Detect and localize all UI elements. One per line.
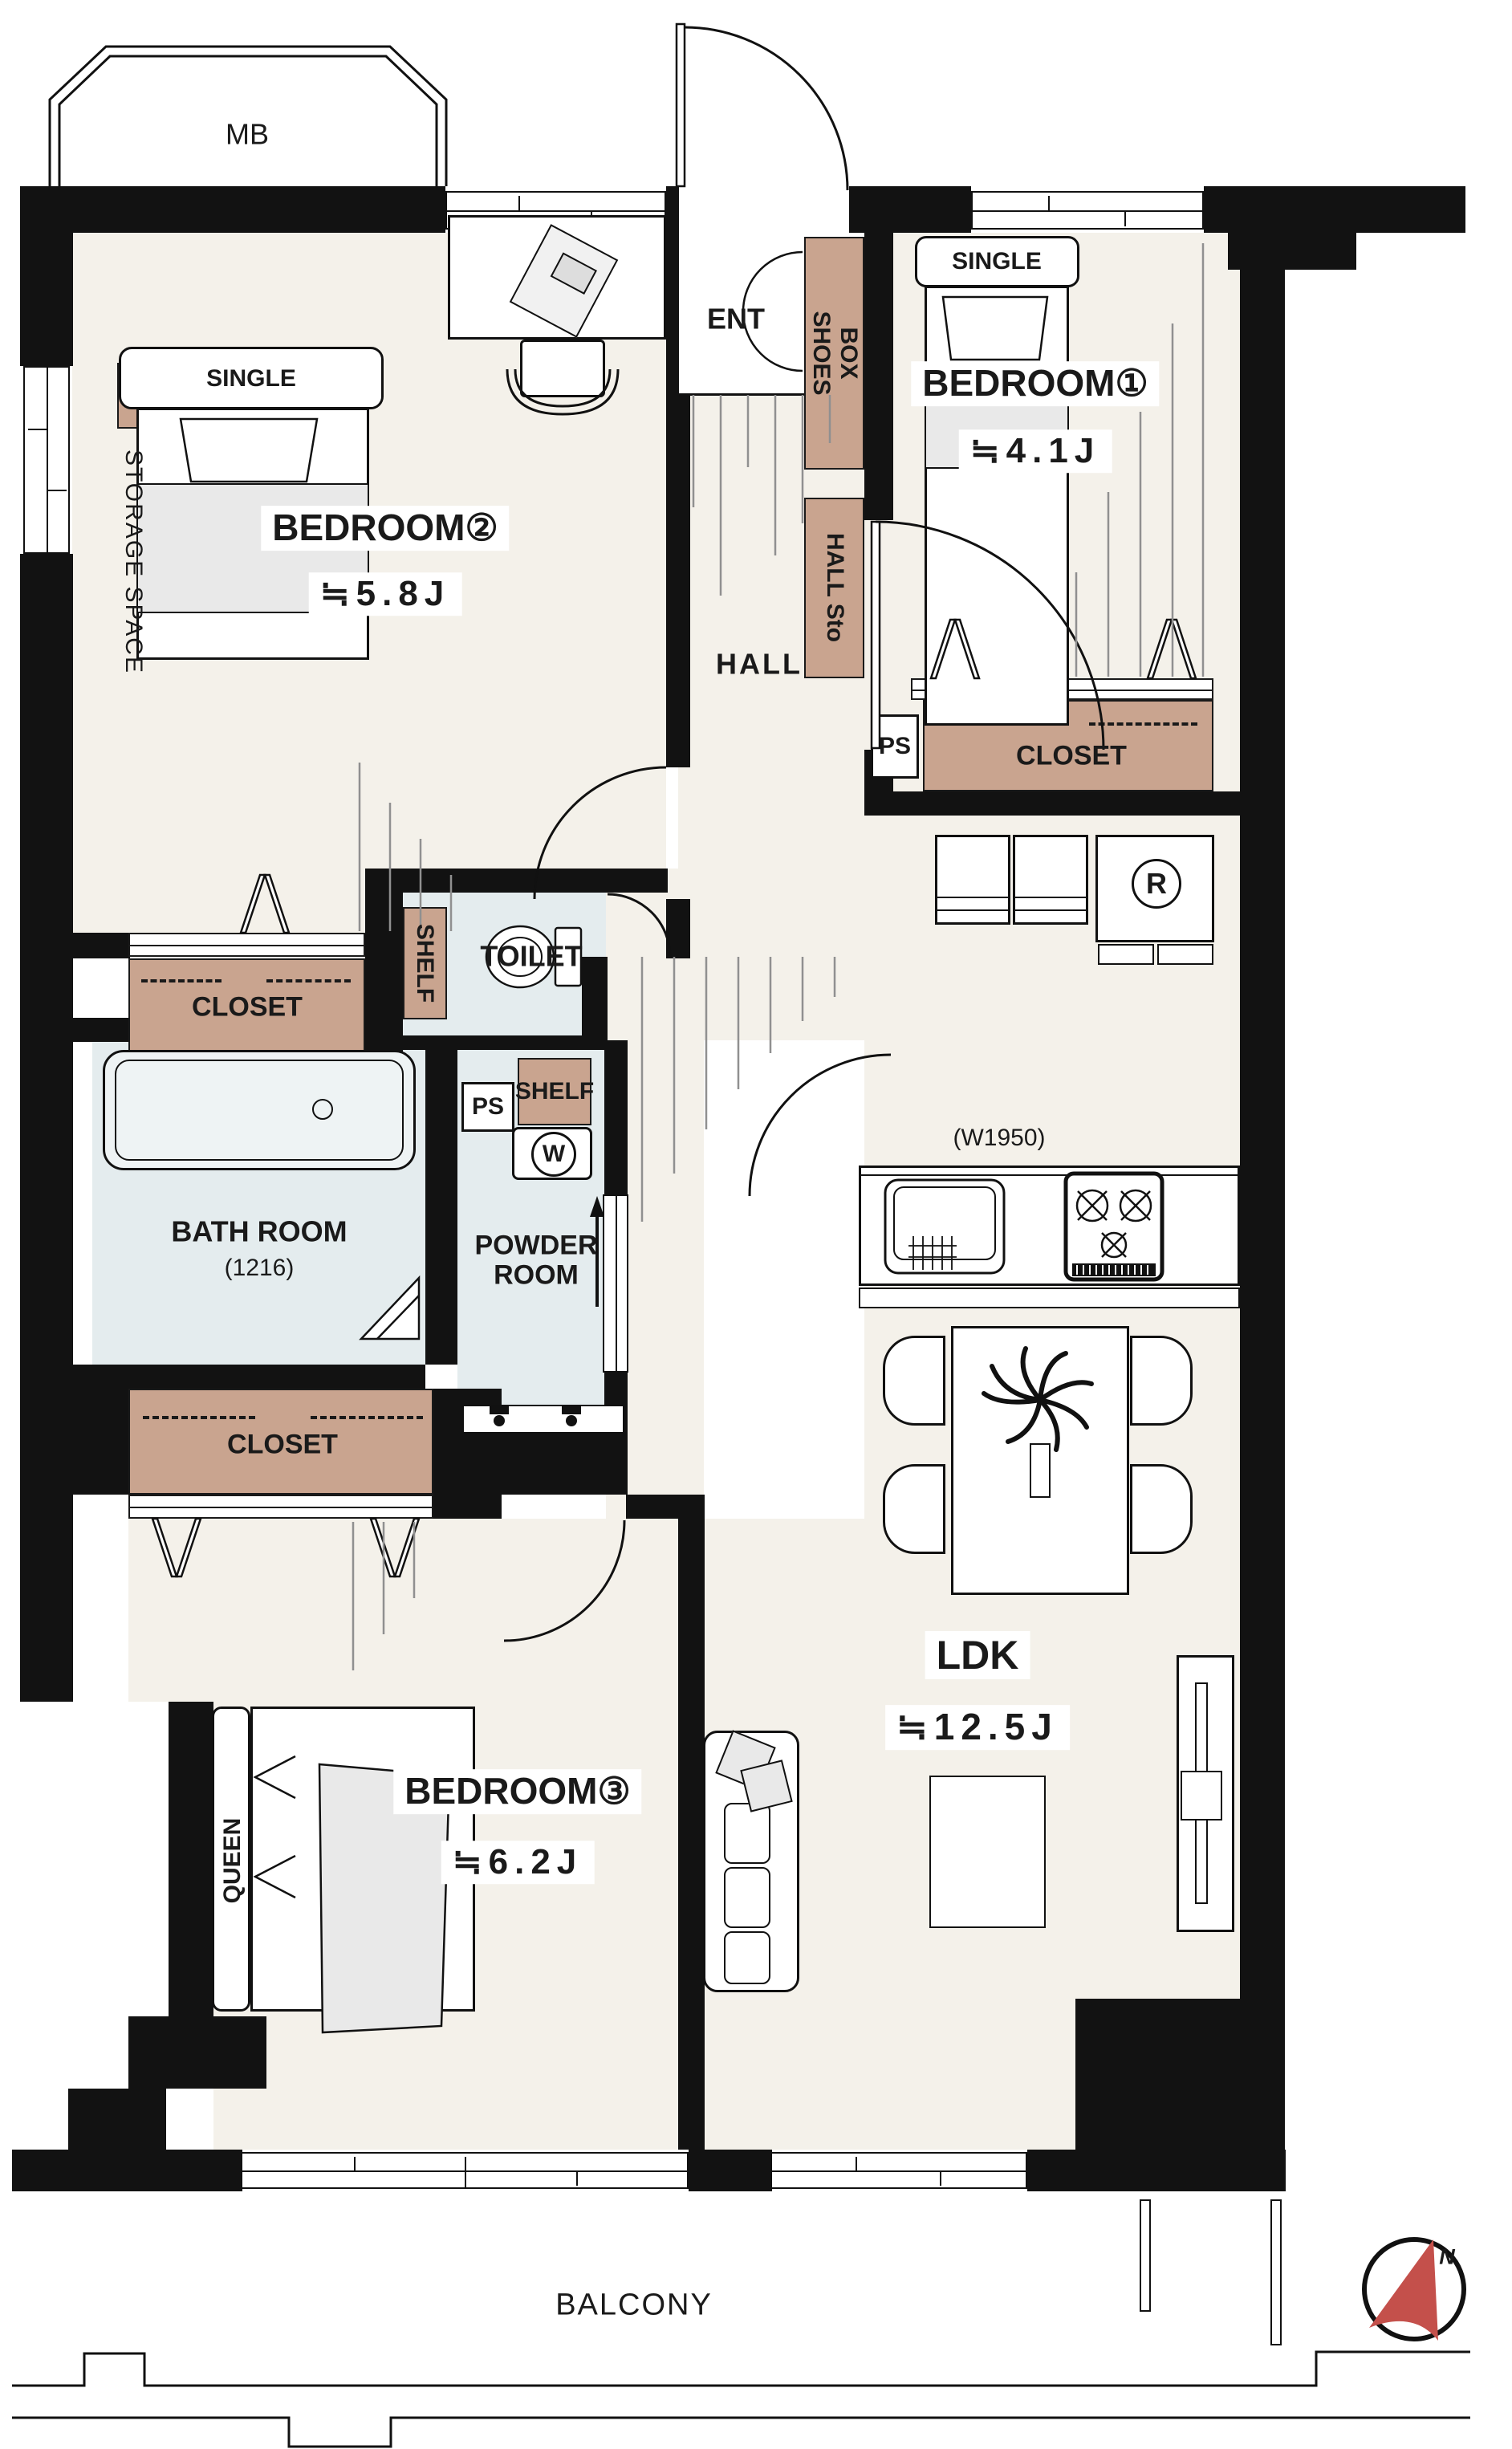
- toilet-shelf-label: SHELF: [412, 924, 437, 1003]
- kitchen-width-label: (W1950): [953, 1125, 1045, 1151]
- balcony-label: BALCONY: [555, 2288, 713, 2321]
- hall-label: HALL: [716, 649, 803, 681]
- bedroom2-area: ≒5.8J: [309, 572, 462, 616]
- shoes-box-label-line1: SHOES: [808, 311, 834, 395]
- bedroom3-area: ≒6.2J: [441, 1841, 595, 1884]
- powder-room-name: POWDER ROOM: [456, 1231, 616, 1289]
- meter-box-label: MB: [226, 120, 269, 151]
- ldk-area: ≒12.5J: [885, 1705, 1070, 1750]
- bedroom2-bed-label: SINGLE: [206, 366, 296, 392]
- powder-ps-label: PS: [472, 1094, 504, 1120]
- bathroom-size: (1216): [225, 1255, 295, 1281]
- bedroom2-closet-label: CLOSET: [192, 993, 303, 1023]
- powder-shelf-label: SHELF: [515, 1079, 594, 1104]
- bedroom3-closet-label: CLOSET: [227, 1430, 338, 1460]
- toilet-label: TOILET: [480, 942, 582, 973]
- ldk-name: LDK: [925, 1631, 1030, 1679]
- shoes-box-label-line2: BOX: [835, 327, 861, 379]
- hall-storage-label: HALL Sto: [822, 533, 847, 642]
- bedroom3-bed-label: QUEEN: [220, 1818, 246, 1904]
- entrance-label: ENT: [707, 304, 765, 336]
- bedroom1-closet-label: CLOSET: [1016, 742, 1127, 771]
- compass-north-label: N: [1439, 2245, 1455, 2268]
- floor-plan: R W: [0, 0, 1512, 2449]
- bathroom-name: BATH ROOM: [171, 1217, 347, 1248]
- bedroom1-name: BEDROOM①: [911, 361, 1159, 406]
- bedroom1-bed-label: SINGLE: [952, 249, 1042, 275]
- bedroom3-name: BEDROOM③: [393, 1769, 641, 1814]
- bedroom1-ps-label: PS: [879, 734, 911, 759]
- storage-legend-label: STORAGE SPACE: [120, 450, 146, 674]
- bedroom2-name: BEDROOM②: [261, 506, 509, 551]
- bedroom1-area: ≒4.1J: [959, 429, 1112, 473]
